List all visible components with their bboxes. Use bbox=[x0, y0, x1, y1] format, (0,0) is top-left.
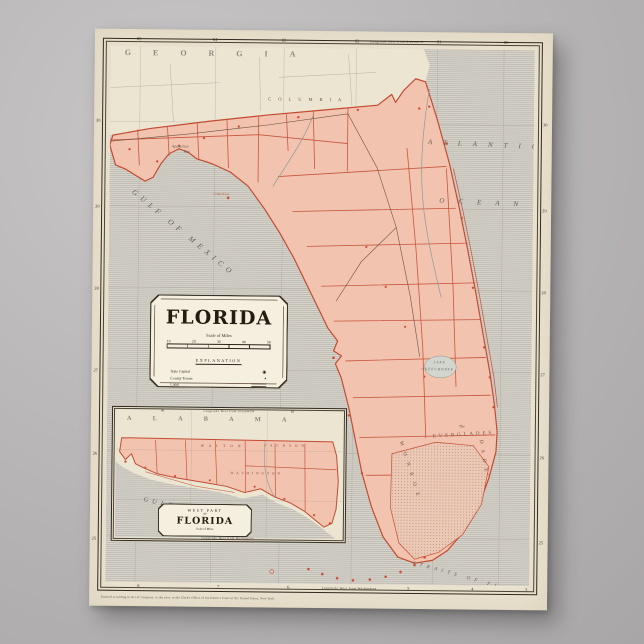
jackson-county-label: JACKSON bbox=[265, 444, 308, 448]
map-poster: 85 84 83 82 Longitude West from Greenwic… bbox=[89, 29, 553, 611]
inset-cartouche-panel: WEST PART OF FLORIDA Scale of Miles bbox=[159, 504, 251, 536]
inset-scale-label: Scale of Miles bbox=[159, 526, 251, 531]
photo-background: 85 84 83 82 Longitude West from Greenwic… bbox=[0, 0, 644, 644]
title-cartouche: FLORIDA Scale of Miles 10 20 30 40 50 EX… bbox=[149, 294, 288, 388]
lake-label: LAKE bbox=[434, 361, 446, 365]
okeechobee-label: OKEECHOBEE bbox=[421, 368, 453, 372]
inset-cartouche: WEST PART OF FLORIDA Scale of Miles bbox=[158, 503, 252, 537]
title-cartouche-panel: FLORIDA Scale of Miles 10 20 30 40 50 EX… bbox=[150, 295, 287, 387]
washington-county-label: WASHINGTON bbox=[230, 472, 283, 476]
lat-tick: 25 bbox=[92, 537, 96, 541]
lat-tick: 27 bbox=[540, 373, 544, 377]
walton-county-label: WALTON bbox=[201, 445, 246, 449]
inset-lon-tick: 85 bbox=[291, 410, 294, 413]
apalachee-bay-label-2: Bay bbox=[184, 150, 190, 154]
everglades-the-label: The bbox=[459, 425, 465, 429]
lat-tick: 30 bbox=[96, 119, 100, 123]
lat-tick: 29 bbox=[95, 205, 99, 209]
lat-tick: 30 bbox=[543, 123, 547, 127]
lat-tick: 29 bbox=[542, 209, 546, 213]
copyright-line: Entered according to Act of Congress, in… bbox=[101, 596, 461, 603]
inset-lon-tick: 86 bbox=[161, 409, 164, 412]
lat-tick: 25 bbox=[539, 541, 543, 545]
cedar-keys-label: Cedar Keys bbox=[213, 193, 229, 197]
lat-tick: 26 bbox=[540, 456, 544, 460]
cartouche-inner-rule bbox=[154, 298, 285, 384]
lat-tick: 27 bbox=[93, 369, 97, 373]
lat-tick: 26 bbox=[93, 452, 97, 456]
columbia-county-label: COLUMBIA bbox=[268, 97, 348, 102]
lat-tick: 28 bbox=[541, 291, 545, 295]
inset-map-west-florida: Longitude West from Greenwich 86 85 Long… bbox=[111, 406, 347, 543]
lat-tick: 28 bbox=[94, 287, 98, 291]
